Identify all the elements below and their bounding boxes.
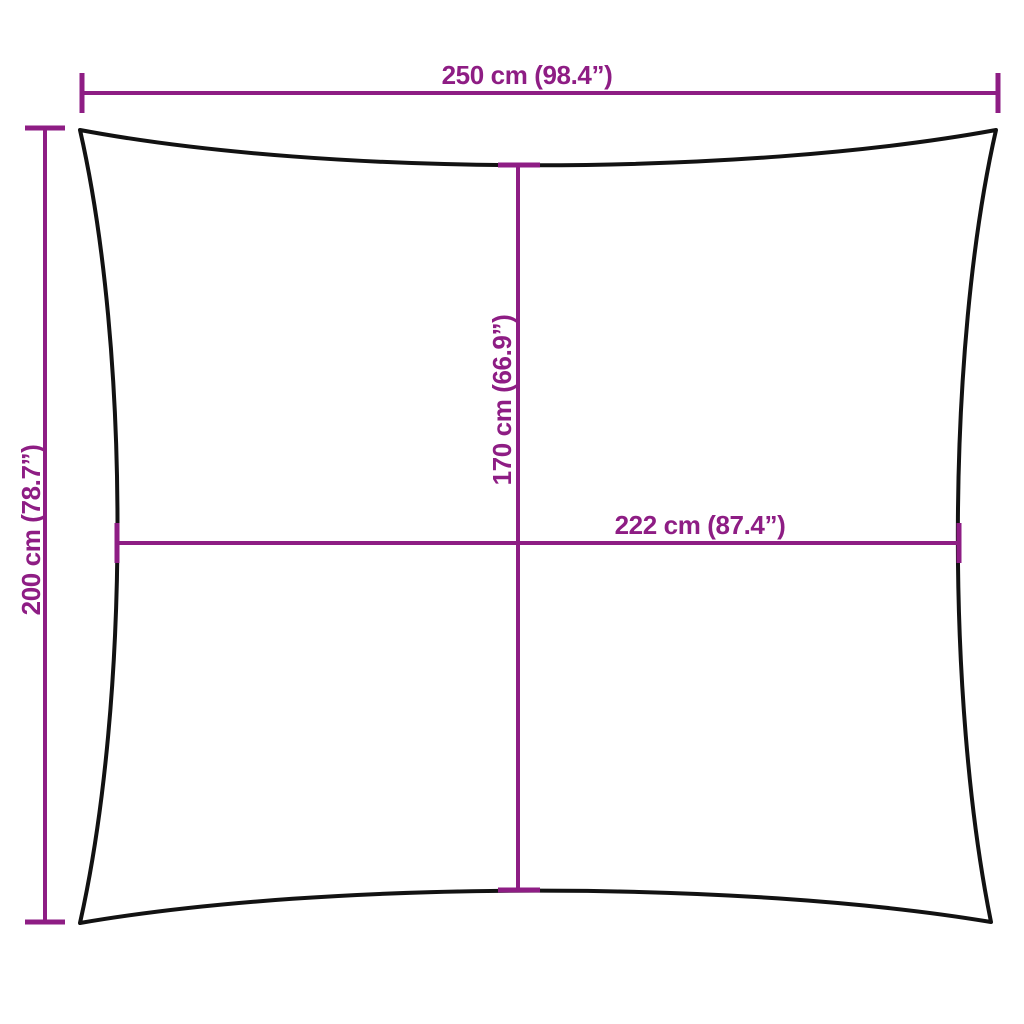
diagram-canvas: 250 cm (98.4”) 200 cm (78.7”) 170 cm (66…: [0, 0, 1024, 1024]
dimension-inner-width: 222 cm (87.4”): [117, 510, 959, 563]
dimension-inner-height: 170 cm (66.9”): [487, 165, 540, 890]
shade-sail-outline: [80, 130, 996, 923]
shade-sail-dimension-diagram: 250 cm (98.4”) 200 cm (78.7”) 170 cm (66…: [0, 0, 1024, 1024]
dimension-label-left-height: 200 cm (78.7”): [16, 445, 46, 616]
dimension-label-inner-height: 170 cm (66.9”): [487, 315, 517, 486]
dimension-label-top-width: 250 cm (98.4”): [442, 60, 613, 90]
dimension-top-width: 250 cm (98.4”): [82, 60, 998, 113]
dimension-label-inner-width: 222 cm (87.4”): [615, 510, 786, 540]
dimension-left-height: 200 cm (78.7”): [16, 128, 65, 922]
